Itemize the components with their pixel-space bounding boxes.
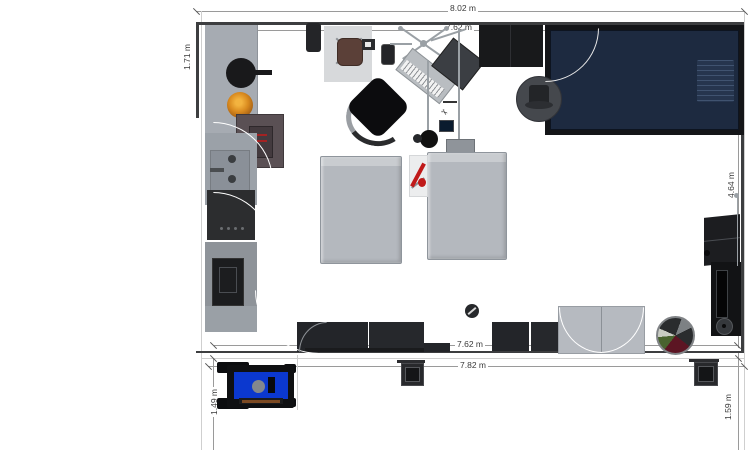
speaker-slot (716, 270, 728, 318)
stand-joint (398, 26, 403, 31)
sofa-right-a[interactable] (492, 322, 529, 351)
guitar-body (418, 178, 426, 187)
bed-pillow (697, 60, 734, 102)
dim-label-bottom-right: 1.59 m (723, 392, 733, 422)
microphone[interactable] (420, 130, 438, 148)
door-swing-arc (213, 192, 273, 252)
bed-left[interactable] (320, 156, 402, 264)
microphone-knob (413, 134, 422, 143)
ext-line-bottom (201, 358, 744, 359)
foosball-center (252, 380, 265, 393)
mic-stand-pole[interactable] (458, 28, 460, 150)
guitar-stand-mat[interactable] (409, 155, 428, 197)
wall-left[interactable] (196, 22, 199, 118)
desk-chair[interactable] (337, 38, 363, 66)
ext-line-left-margin (201, 11, 202, 450)
side-table-1[interactable] (401, 363, 424, 386)
foosball-table[interactable] (227, 365, 294, 408)
foosball-wood-strip (242, 400, 280, 403)
wardrobe-seam (510, 25, 511, 67)
dim-line-bottom-right (738, 353, 739, 450)
dim-label-left: 1.71 m (182, 42, 192, 72)
mini-monitor[interactable] (362, 39, 375, 50)
stool-with-hat[interactable] (516, 76, 562, 122)
refrigerator-door (212, 258, 244, 306)
lower-cabinet[interactable] (205, 306, 257, 332)
frying-pan-handle (254, 70, 272, 75)
wall-bottom[interactable] (196, 351, 744, 353)
stand-joint (420, 40, 427, 47)
mic-stand-pole-2[interactable] (427, 60, 429, 138)
sofa-armrest (424, 343, 450, 352)
hat-brim (525, 101, 553, 109)
tuner-screen[interactable] (439, 120, 454, 132)
sofa-right-b[interactable] (531, 322, 558, 351)
side-table-top (698, 366, 714, 382)
mic-stand-tip (734, 193, 739, 198)
stand-joint (444, 26, 449, 31)
speaker-small[interactable] (381, 44, 395, 65)
side-table-2[interactable] (694, 362, 718, 386)
mini-monitor-screen (365, 42, 371, 47)
mic-stand-right[interactable] (737, 196, 738, 266)
speaker-tower[interactable] (711, 262, 741, 336)
bed-right[interactable] (427, 152, 507, 260)
floor-plan-canvas: 8.02 m 7.62 m 7.62 m 7.82 m 4.64 m 1.71 … (0, 0, 750, 450)
dim-label-bottom-inner: 7.62 m (455, 339, 485, 349)
keyboard-stand-bar (390, 43, 412, 45)
side-table-top (405, 367, 420, 382)
ext-line-right-margin (744, 11, 745, 450)
scissors-icon: ✂ (439, 107, 450, 118)
tower-knob (704, 250, 710, 256)
ext-line-foosball (297, 355, 298, 410)
foosball-slot (268, 377, 275, 393)
dim-label-top-outer: 8.02 m (448, 3, 478, 13)
door-glyph (219, 267, 237, 293)
dim-label-bottom-outer: 7.82 m (458, 360, 488, 370)
cable (443, 101, 457, 103)
wardrobe[interactable] (479, 25, 543, 67)
laundry-basket[interactable] (656, 316, 695, 355)
frying-pan[interactable] (226, 58, 256, 88)
speaker[interactable] (306, 23, 321, 52)
panel-seam (704, 237, 740, 242)
speaker-panels[interactable] (704, 214, 740, 266)
speaker-woofer-center (722, 324, 726, 328)
